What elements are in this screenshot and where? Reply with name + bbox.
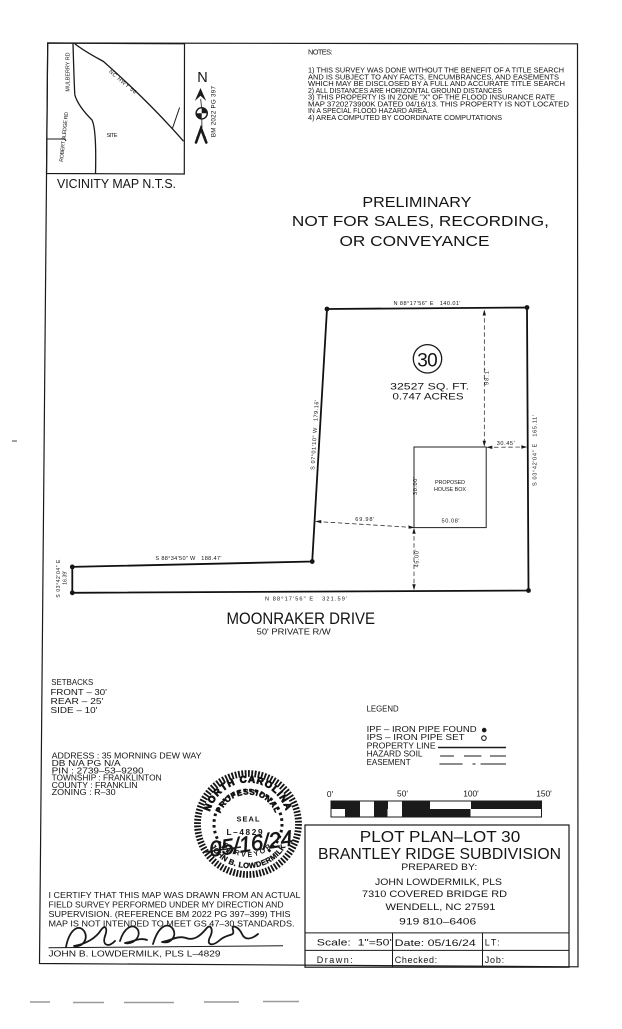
svg-text:REAR – 25': REAR – 25' bbox=[51, 697, 105, 706]
svg-text:N 88°17'56" E 140.01': N 88°17'56" E 140.01' bbox=[394, 301, 461, 307]
svg-text:4) AREA COMPUTED BY COORDINATE: 4) AREA COMPUTED BY COORDINATE COMPUTATI… bbox=[308, 113, 502, 122]
svg-text:S 03°42'04" E: S 03°42'04" E bbox=[56, 559, 62, 598]
svg-text:VICINITY MAP N.T.S.: VICINITY MAP N.T.S. bbox=[57, 177, 176, 191]
svg-text:BM 2022 PG 397: BM 2022 PG 397 bbox=[211, 86, 218, 138]
svg-text:PRELIMINARY: PRELIMINARY bbox=[362, 194, 471, 211]
svg-text:SIDE – 10': SIDE – 10' bbox=[51, 706, 99, 715]
svg-text:7310 COVERED BRIDGE RD: 7310 COVERED BRIDGE RD bbox=[362, 889, 508, 899]
svg-text:PLOT PLAN–LOT 30: PLOT PLAN–LOT 30 bbox=[360, 829, 521, 846]
svg-text:BRANTLEY RIDGE SUBDIVISION: BRANTLEY RIDGE SUBDIVISION bbox=[318, 846, 561, 863]
svg-text:PREPARED BY:: PREPARED BY: bbox=[401, 862, 477, 872]
svg-text:Drawn:: Drawn: bbox=[317, 955, 353, 965]
svg-text:919 810–6406: 919 810–6406 bbox=[399, 916, 476, 926]
svg-text:0.747 ACRES: 0.747 ACRES bbox=[393, 392, 464, 403]
svg-text:30.45': 30.45' bbox=[497, 441, 515, 447]
svg-text:N 88°17'56" E 321.59': N 88°17'56" E 321.59' bbox=[265, 596, 347, 602]
svg-text:SITE: SITE bbox=[107, 133, 118, 139]
svg-text:30: 30 bbox=[417, 350, 438, 371]
svg-text:45.00': 45.00' bbox=[414, 549, 420, 567]
svg-text:MOONRAKER DRIVE: MOONRAKER DRIVE bbox=[227, 610, 376, 628]
svg-text:S 88°34'50" W 188.47': S 88°34'50" W 188.47' bbox=[155, 556, 221, 562]
svg-text:HOUSE BOX: HOUSE BOX bbox=[434, 487, 466, 493]
svg-text:NOTES:: NOTES: bbox=[308, 48, 333, 57]
svg-text:30.00': 30.00' bbox=[413, 477, 419, 495]
svg-text:0': 0' bbox=[327, 789, 334, 799]
svg-text:FRONT – 30': FRONT – 30' bbox=[51, 688, 108, 697]
svg-text:Job:: Job: bbox=[485, 955, 505, 965]
svg-text:SEAL: SEAL bbox=[237, 815, 260, 824]
svg-text:69.98': 69.98' bbox=[355, 517, 374, 523]
svg-text:98.1': 98.1' bbox=[484, 369, 490, 385]
svg-text:S 03°42'04" E 165.11': S 03°42'04" E 165.11' bbox=[533, 415, 539, 486]
svg-text:WENDELL, NC 27591: WENDELL, NC 27591 bbox=[386, 902, 496, 912]
svg-text:LT:: LT: bbox=[485, 937, 500, 947]
svg-text:EASEMENT: EASEMENT bbox=[367, 758, 411, 767]
svg-text:Scale: 1"=50': Scale: 1"=50' bbox=[317, 937, 392, 947]
svg-text:NOT FOR SALES, RECORDING,: NOT FOR SALES, RECORDING, bbox=[292, 213, 549, 230]
svg-text:MULBERRY RD: MULBERRY RD bbox=[66, 52, 72, 91]
svg-text:SETBACKS: SETBACKS bbox=[51, 678, 93, 687]
svg-text:ZONING : R–30: ZONING : R–30 bbox=[52, 788, 117, 797]
svg-text:OR CONVEYANCE: OR CONVEYANCE bbox=[340, 233, 490, 250]
svg-text:JOHN B. LOWDERMILK, PLS L–4829: JOHN B. LOWDERMILK, PLS L–4829 bbox=[49, 948, 221, 958]
svg-text:N: N bbox=[197, 70, 207, 86]
svg-text:16.39': 16.39' bbox=[63, 571, 69, 585]
svg-text:50' PRIVATE R/W: 50' PRIVATE R/W bbox=[257, 628, 331, 637]
svg-text:JOHN LOWDERMILK, PLS: JOHN LOWDERMILK, PLS bbox=[375, 877, 502, 887]
svg-text:50.08': 50.08' bbox=[442, 519, 460, 525]
svg-text:Checked:: Checked: bbox=[395, 955, 438, 965]
svg-text:150': 150' bbox=[536, 789, 552, 799]
svg-text:Date: 05/16/24: Date: 05/16/24 bbox=[395, 938, 476, 948]
svg-text:PROPOSED: PROPOSED bbox=[435, 480, 465, 486]
svg-text:100': 100' bbox=[463, 789, 479, 799]
svg-text:LEGEND: LEGEND bbox=[367, 705, 399, 714]
svg-text:50': 50' bbox=[397, 789, 408, 799]
svg-text:FIELD SURVEY PERFORMED UNDER M: FIELD SURVEY PERFORMED UNDER MY DIRECTIO… bbox=[49, 899, 284, 909]
